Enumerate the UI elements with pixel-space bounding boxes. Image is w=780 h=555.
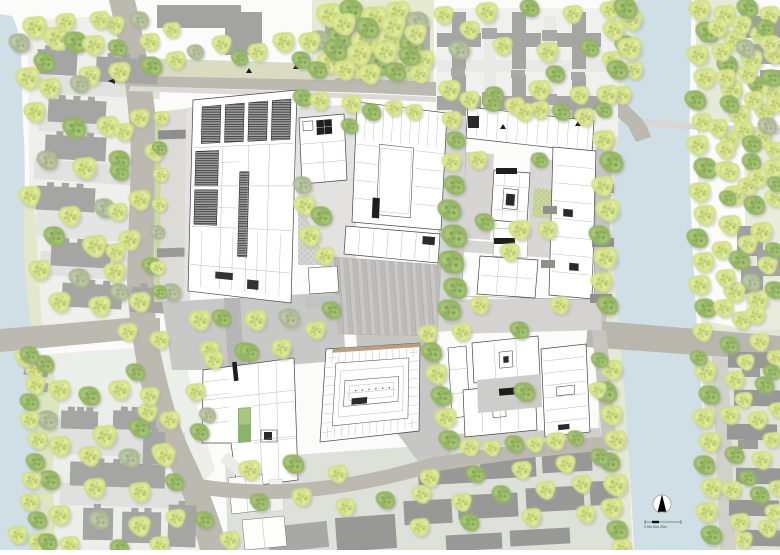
svg-text:0 5m 10m 20m: 0 5m 10m 20m — [644, 525, 667, 529]
